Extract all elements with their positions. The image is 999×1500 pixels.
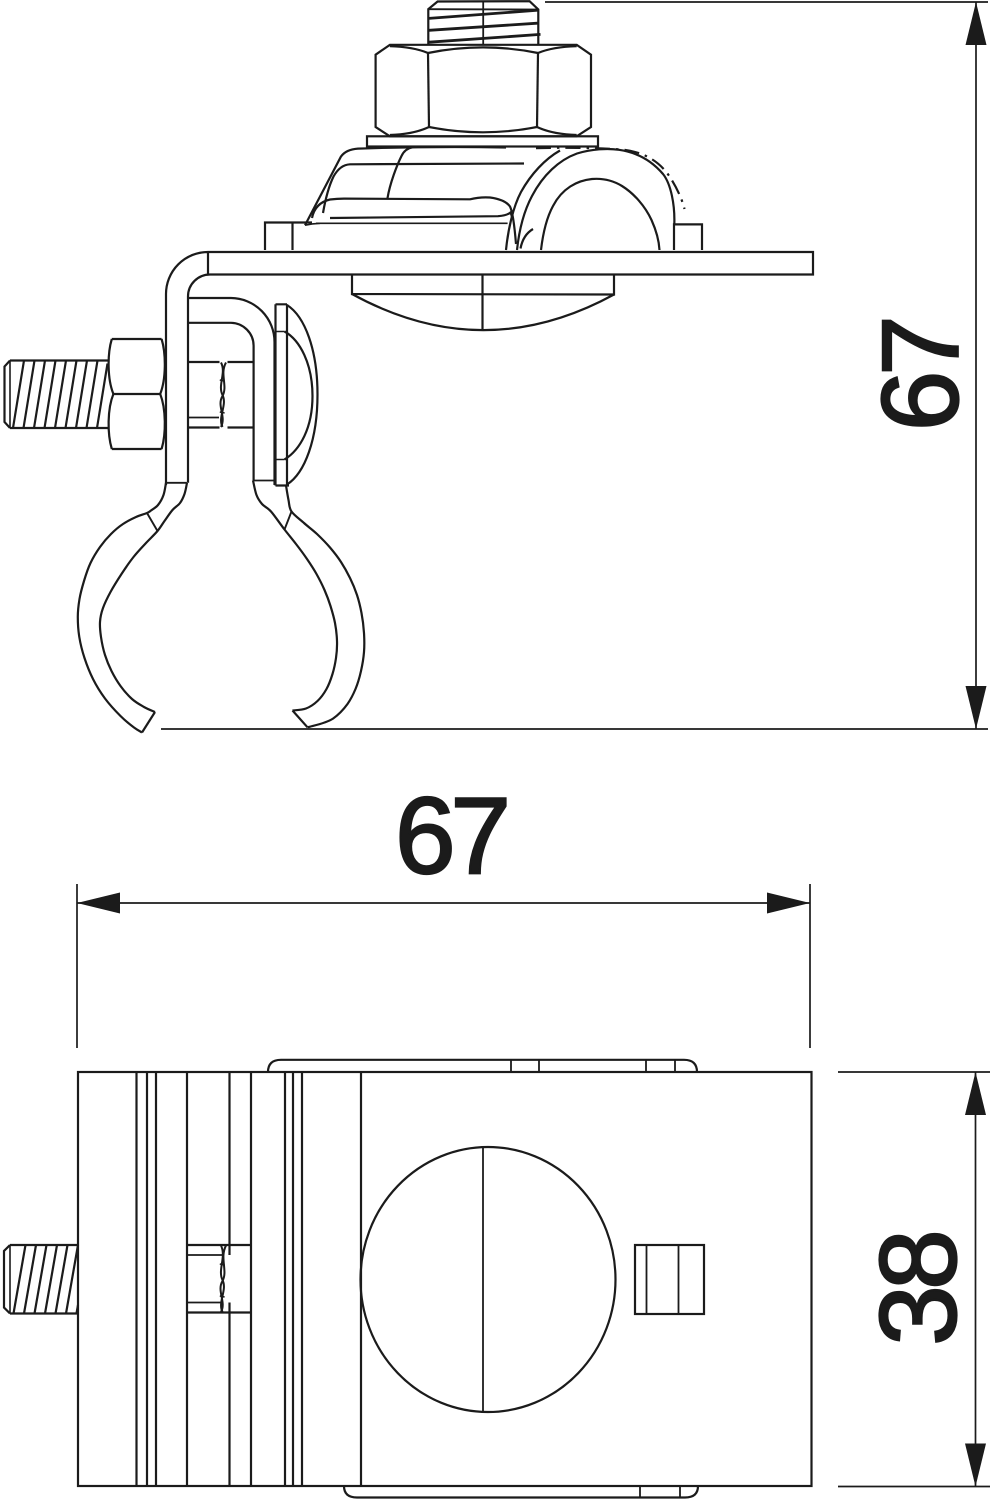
- svg-text:38: 38: [858, 1229, 980, 1346]
- svg-text:67: 67: [395, 775, 511, 897]
- svg-text:67: 67: [860, 315, 982, 431]
